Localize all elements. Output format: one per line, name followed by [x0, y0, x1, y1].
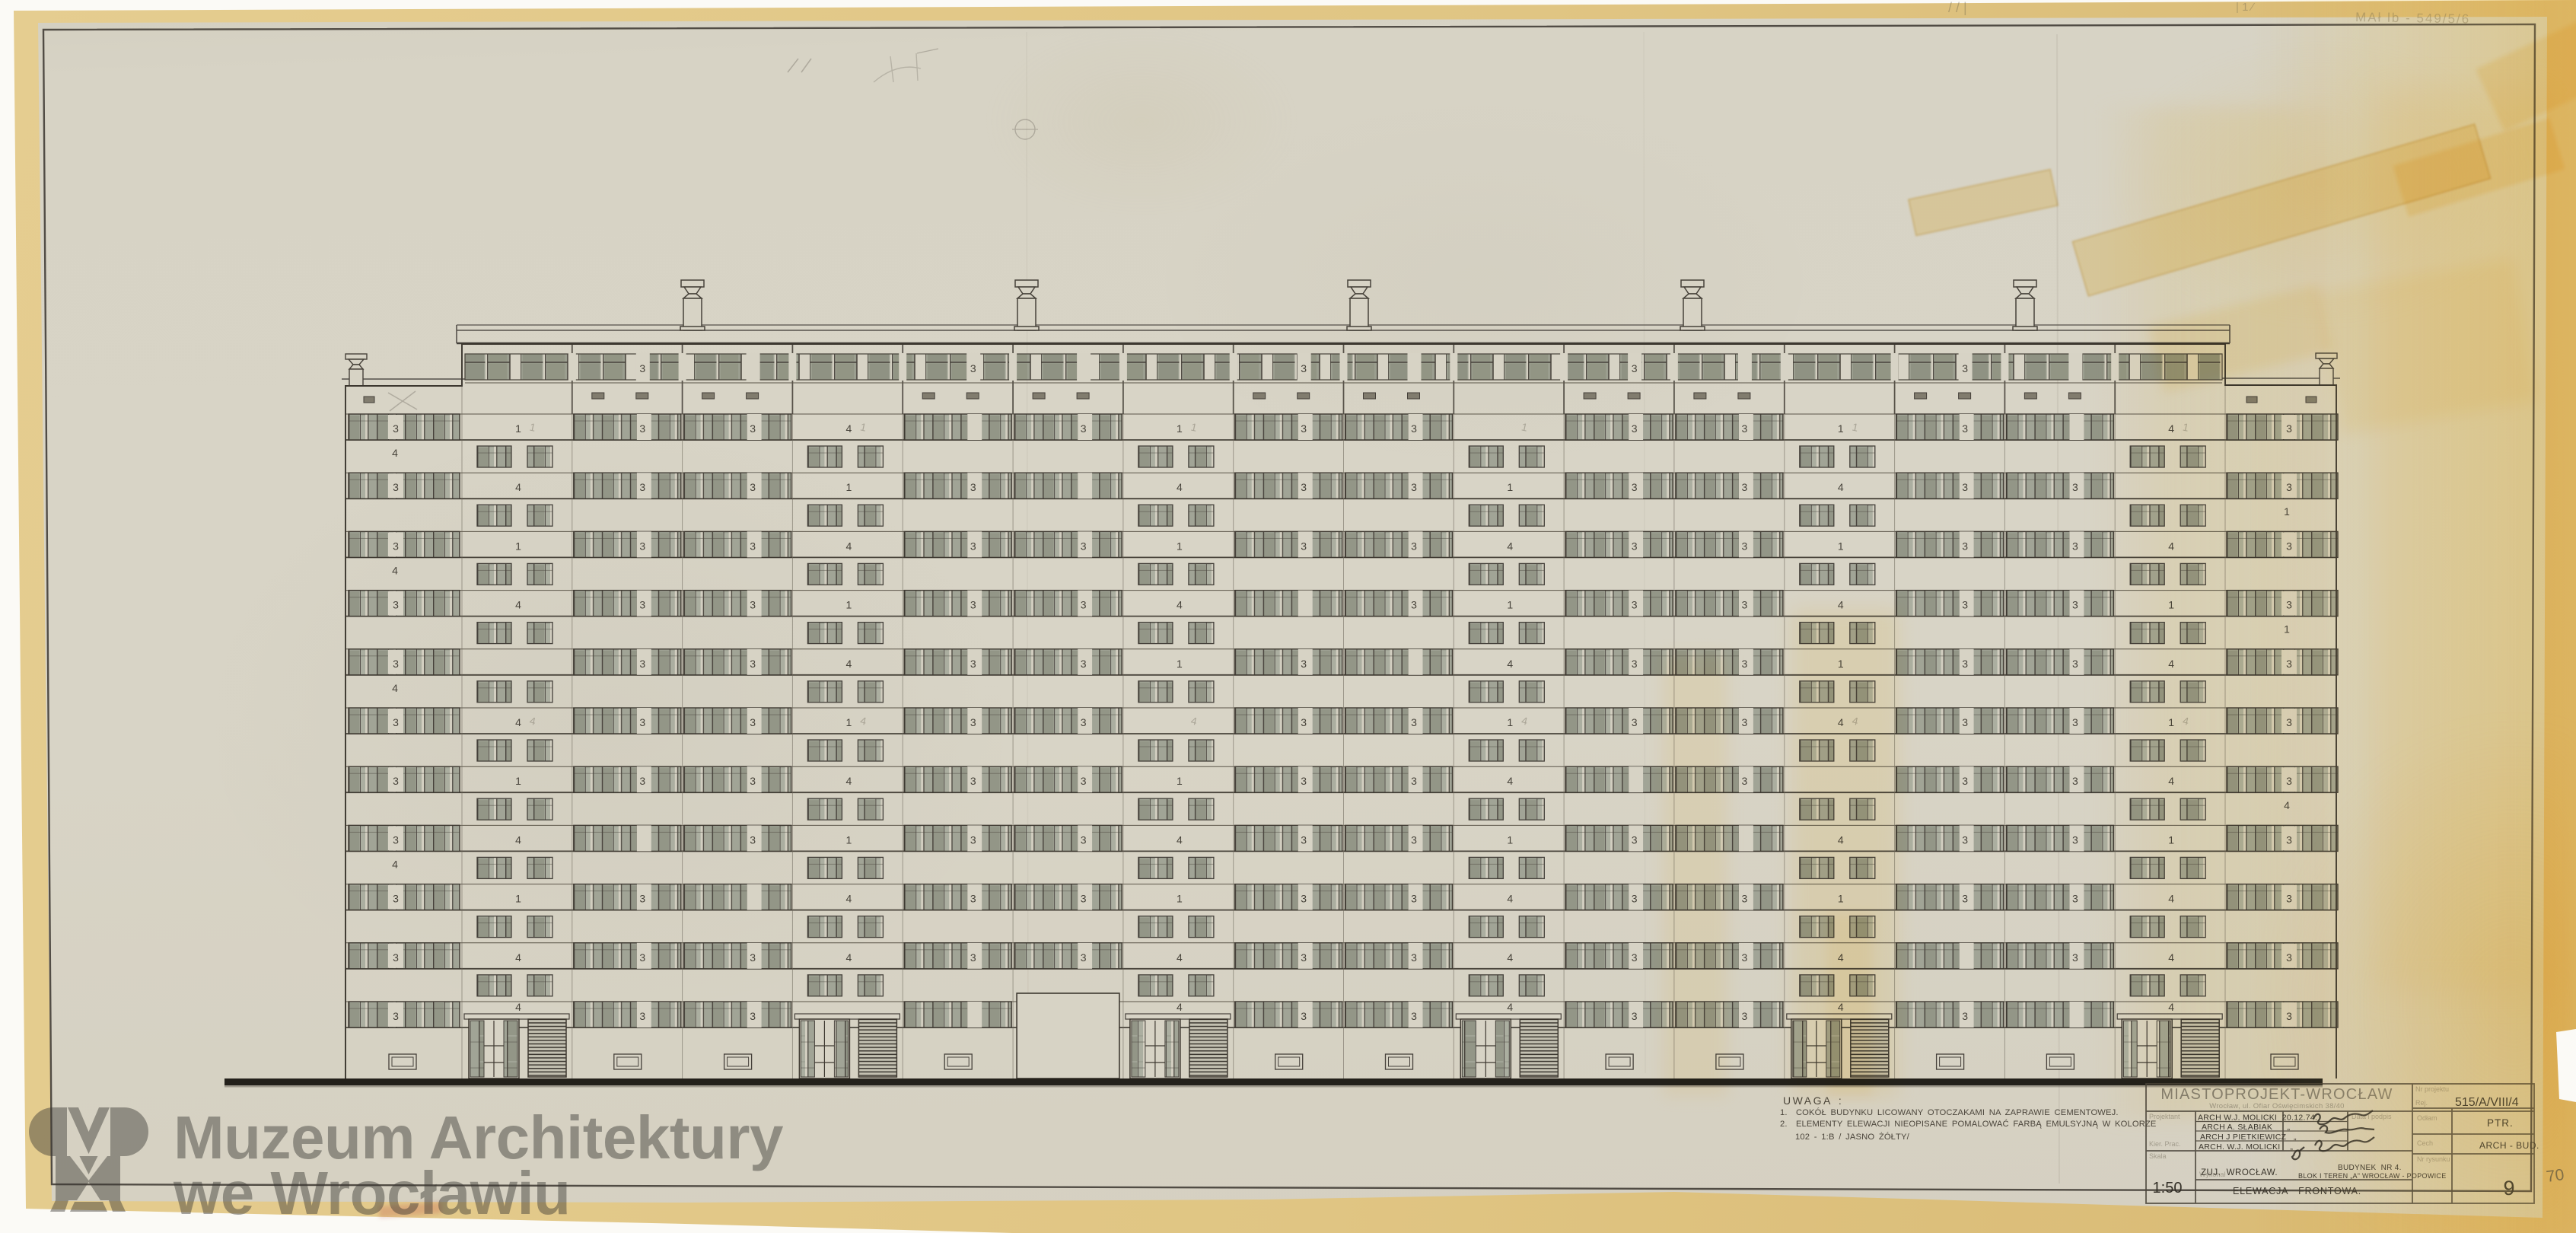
svg-text:we Wrocławiu: we Wrocławiu: [173, 1159, 571, 1227]
